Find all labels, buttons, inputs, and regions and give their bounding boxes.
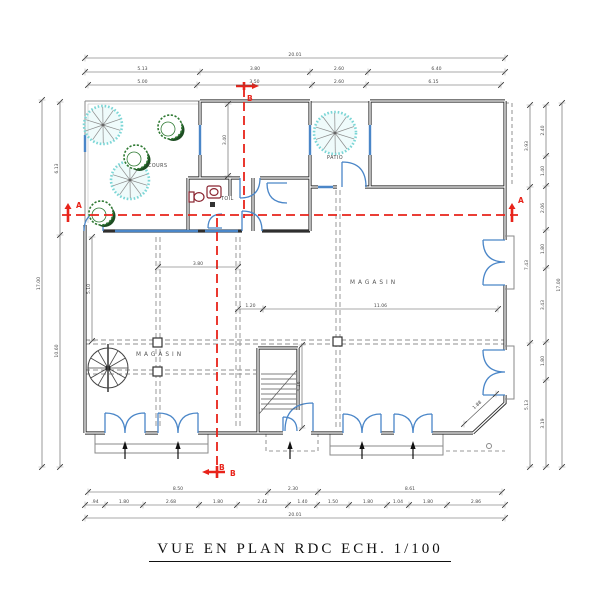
floor-plan-sheet: A A B B B COURS PATIO TOIL MAGASIN MAGAS…	[0, 0, 600, 600]
dimension-value: 1.80	[540, 244, 546, 254]
dimension-value: 3.19	[540, 418, 546, 428]
dimension-value: 1.80	[363, 499, 373, 505]
dimension-value: 8.61	[405, 486, 415, 492]
dimension-value: 2.42	[257, 499, 267, 505]
dimension-value: 2.06	[540, 203, 546, 213]
dimension-value: 6.13	[54, 163, 60, 173]
walls	[85, 101, 514, 449]
dimension-value: 4.16	[296, 381, 302, 391]
dimension-chain: 20.01	[82, 52, 508, 61]
dimension-chain: 5.133.802.606.40	[82, 66, 508, 75]
dimension-chain: 8.502.308.61	[85, 486, 505, 495]
dimension-value: 2.86	[471, 499, 481, 505]
dimension-value: .94	[91, 499, 98, 505]
dimension-value: 2.40	[540, 125, 546, 135]
dimension-value: 1.80	[423, 499, 433, 505]
dimension-chain: .941.802.681.802.421.401.501.801.041.802…	[82, 499, 508, 508]
dimension-value: 20.01	[288, 52, 301, 58]
dimension-value: 5.13	[524, 400, 530, 410]
dimension-value: 5.10	[86, 284, 92, 294]
dimension-chain: 3.937.435.13	[524, 102, 533, 470]
bush-icon	[158, 115, 185, 141]
dimension-chain: 17.00	[36, 97, 45, 470]
section-line-b: B B B	[202, 82, 259, 478]
dimension-value: 1.20	[245, 303, 255, 309]
floor-plan-drawing: A A B B B COURS PATIO TOIL MAGASIN MAGAS…	[0, 0, 600, 600]
dimension-chain: 20.01	[82, 512, 508, 521]
dimension-value: 1.80	[540, 356, 546, 366]
column	[153, 338, 162, 347]
section-a-label-right: A	[518, 196, 524, 205]
dimension-chain: 11.06	[260, 303, 501, 312]
dimension-value: 7.43	[524, 260, 530, 270]
dimension-chain: 17.00	[556, 100, 565, 470]
dimension-value: 1.80	[213, 499, 223, 505]
dimension-value: 2.30	[288, 486, 298, 492]
dimension-chain: 6.1310.60	[54, 99, 63, 470]
tree-icon	[84, 106, 122, 144]
shaft	[210, 202, 215, 207]
dimension-value: 3.40	[222, 135, 228, 145]
label-magasin-left: MAGASIN	[136, 352, 184, 358]
dimension-value: 8.50	[173, 486, 183, 492]
dimension-value: 6.15	[428, 79, 438, 85]
dimension-value: 1.40	[540, 166, 546, 176]
title-bar: VUE EN PLAN RDC ECH. 1/100	[0, 538, 600, 562]
dimension-value: 3.80	[193, 261, 203, 267]
dimension-value: 5.13	[137, 66, 147, 72]
dimension-value: 2.60	[334, 66, 344, 72]
dimension-value: 1.80	[119, 499, 129, 505]
dimension-value: 3.80	[250, 66, 260, 72]
section-b-label-bottom2: B	[230, 469, 236, 478]
courtyard-trees	[84, 106, 356, 227]
dimension-value: 3.93	[524, 141, 530, 151]
entry-steps	[95, 433, 443, 455]
toilet-fixtures	[189, 186, 221, 207]
section-b-label-bottom: B	[219, 463, 225, 472]
corner-column	[487, 444, 492, 449]
tree-icon	[314, 112, 356, 154]
label-cours: COURS	[148, 163, 168, 169]
doors	[84, 162, 505, 433]
dimension-value: 20.01	[288, 512, 301, 518]
label-magasin-right: MAGASIN	[350, 280, 398, 286]
dimension-chain: 1.88	[461, 391, 499, 428]
dimension-value: 2.60	[334, 79, 344, 85]
dimension-chain: 3.80	[155, 261, 241, 270]
dimension-value: 1.40	[297, 499, 307, 505]
column	[153, 367, 162, 376]
dimension-value: 1.04	[393, 499, 403, 505]
dimension-value: 11.06	[374, 303, 387, 309]
spiral-staircase	[88, 344, 128, 392]
dimension-value: 17.00	[36, 277, 42, 290]
bush-icon	[89, 201, 116, 227]
dimension-value: 1.88	[472, 400, 484, 411]
dimension-value: 5.00	[137, 79, 147, 85]
dimension-value: 1.50	[328, 499, 338, 505]
staircase	[259, 370, 297, 414]
dimension-value: 3.43	[540, 300, 546, 310]
section-a-label-left: A	[76, 201, 82, 210]
drawing-title: VUE EN PLAN RDC ECH. 1/100	[149, 541, 451, 562]
dimension-value: 6.40	[431, 66, 441, 72]
dimension-chain: 3.40	[222, 101, 231, 179]
dimension-value: 3.50	[249, 79, 259, 85]
section-b-label-top: B	[247, 94, 253, 103]
label-patio: PATIO	[327, 155, 343, 161]
dimension-value: 17.00	[556, 278, 562, 291]
dimension-value: 2.68	[166, 499, 176, 505]
dimension-chain: 5.10	[86, 234, 95, 344]
dimension-value: 10.60	[54, 344, 60, 357]
dimension-chain: 2.401.402.061.803.431.803.19	[540, 102, 549, 470]
column	[333, 337, 342, 346]
label-toilet: TOIL	[220, 196, 234, 202]
dimension-chain: 5.003.502.606.15	[85, 79, 504, 88]
